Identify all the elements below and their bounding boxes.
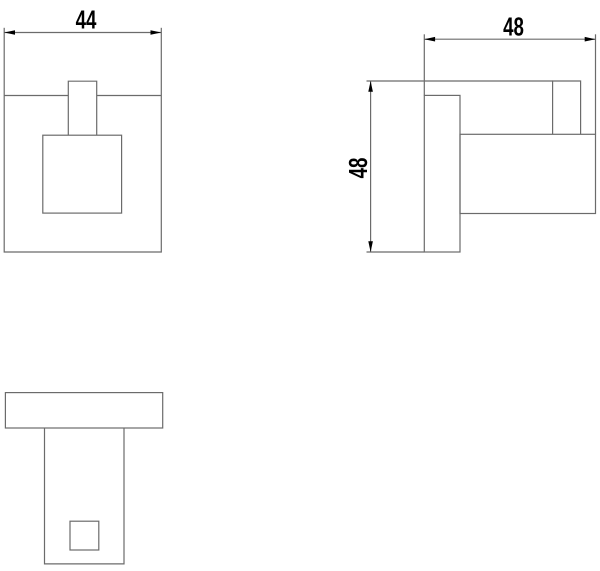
svg-text:44: 44 bbox=[76, 4, 97, 34]
svg-text:48: 48 bbox=[503, 12, 524, 42]
svg-text:48: 48 bbox=[343, 158, 373, 179]
